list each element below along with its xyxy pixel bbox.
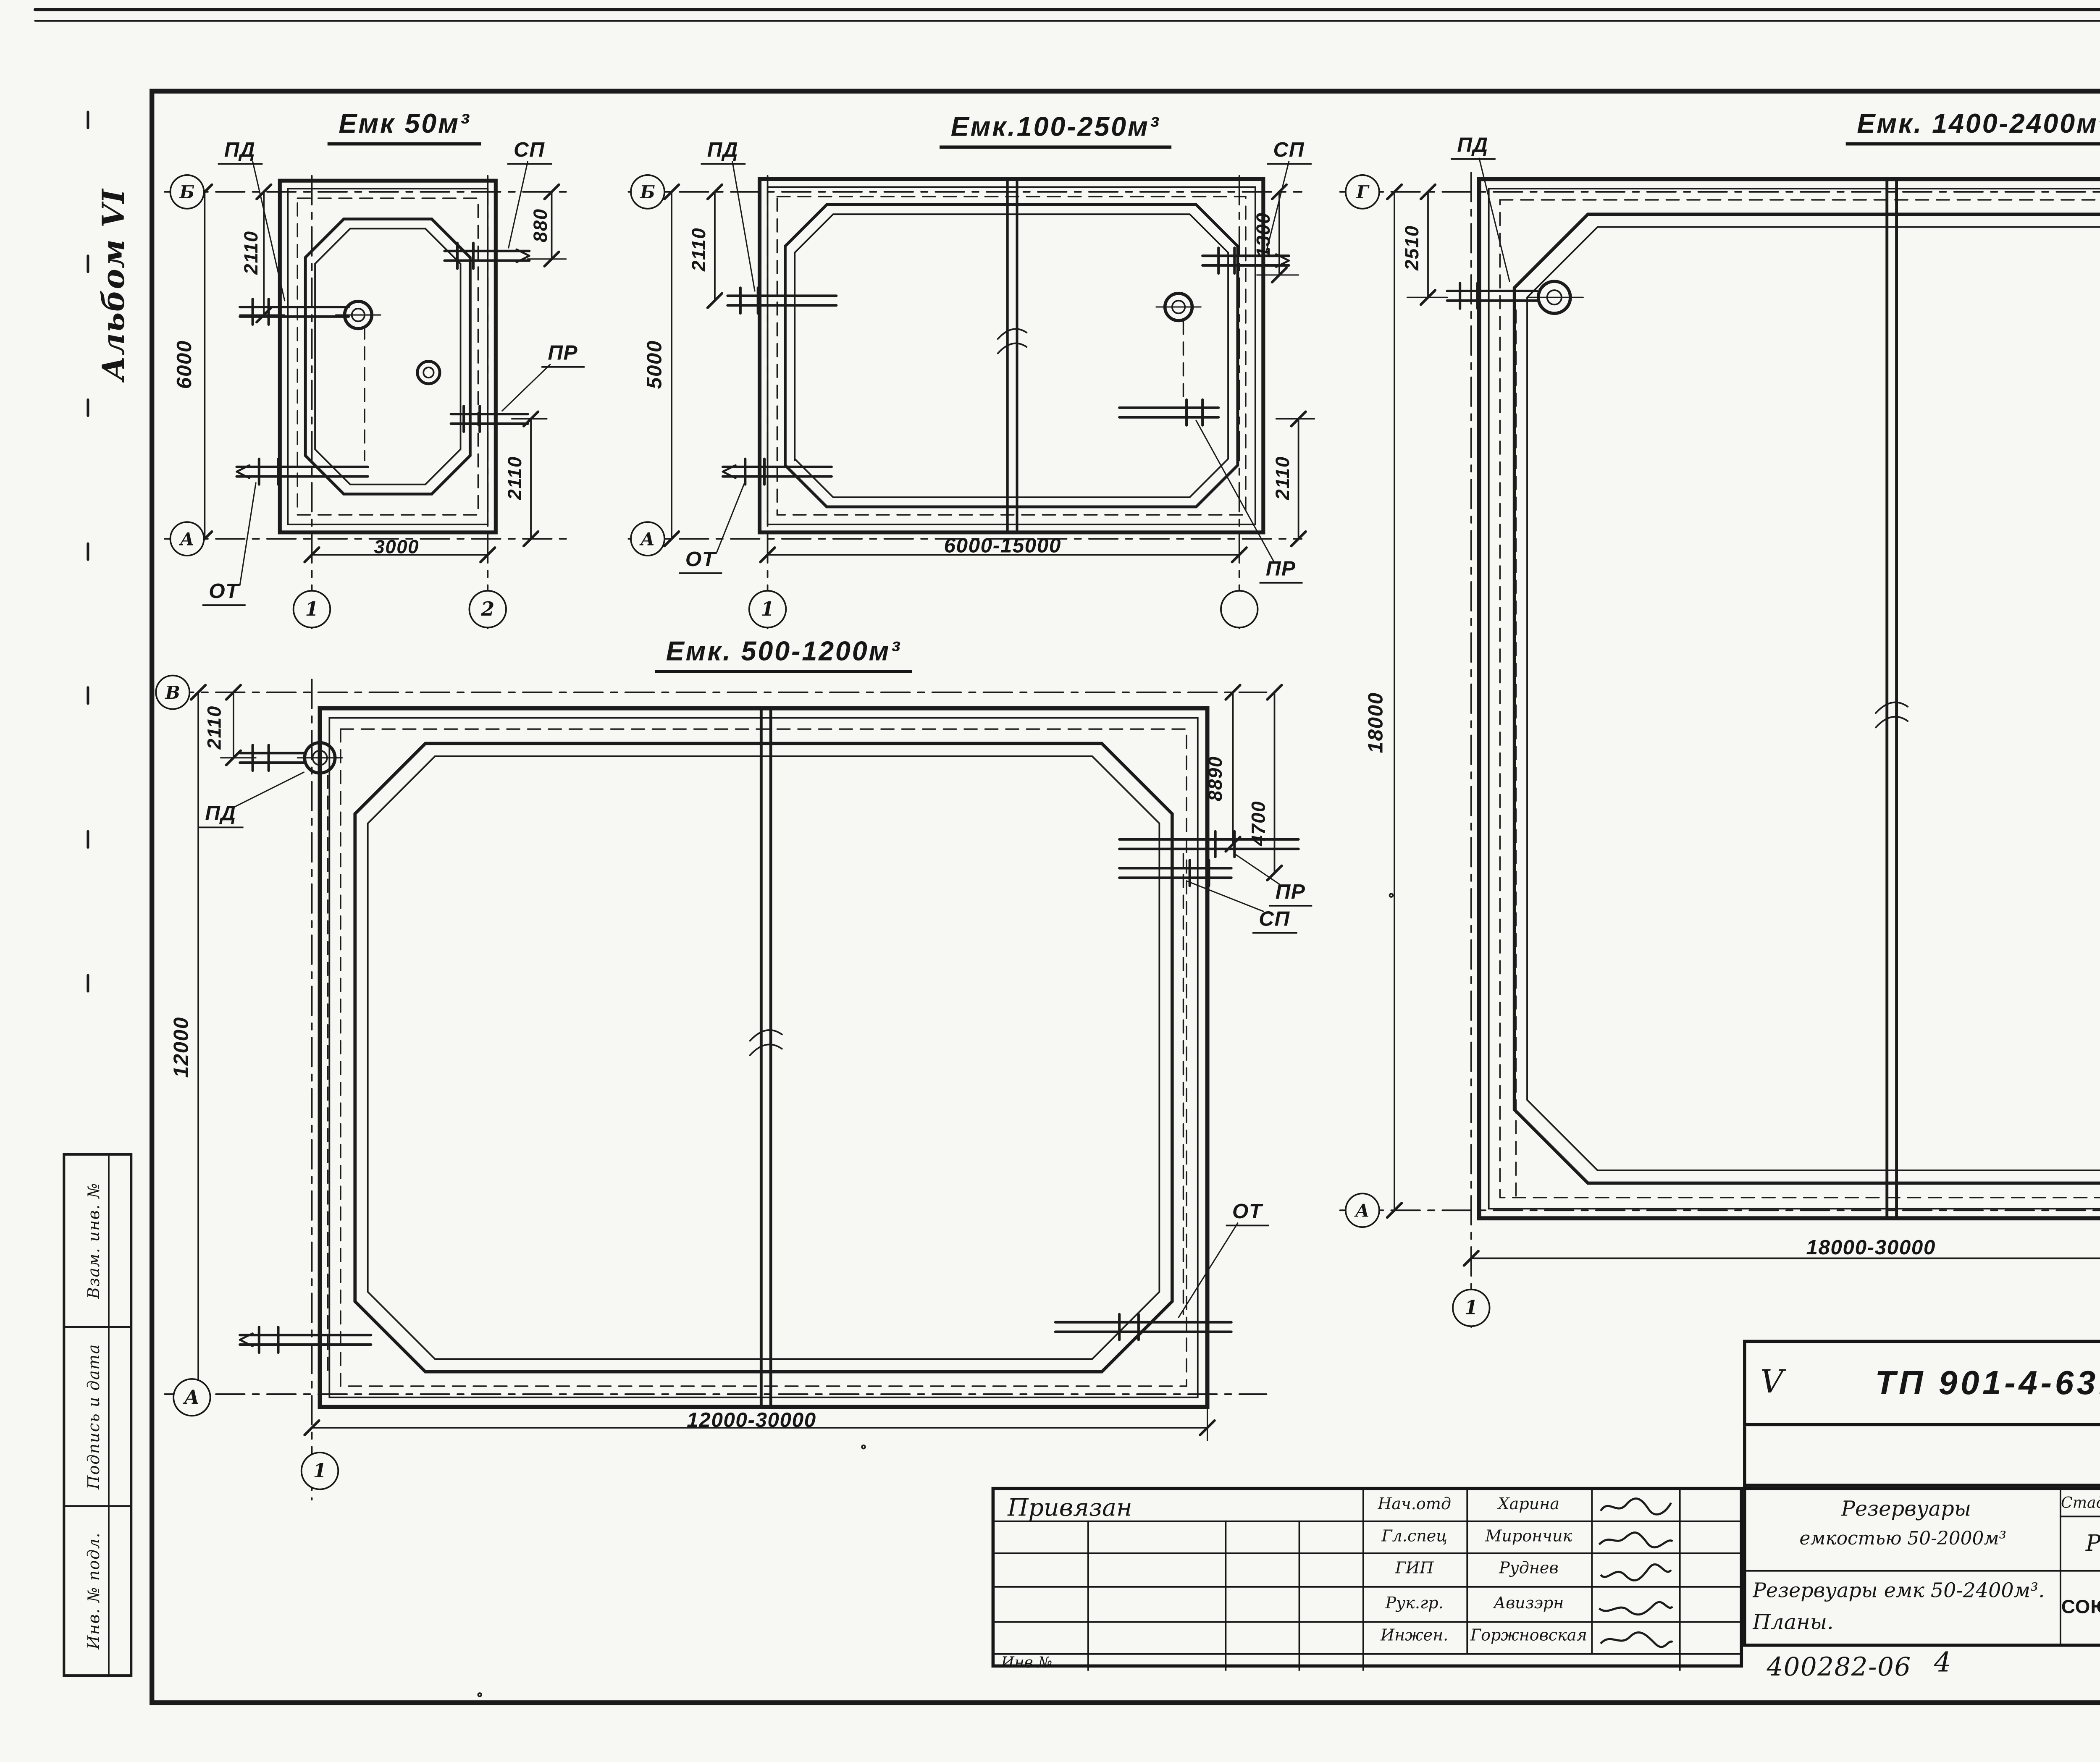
side-box-label-1: Подпись и дата <box>88 1344 104 1489</box>
d2-dim-2110-right: 2110 <box>1273 456 1292 500</box>
project-name-line1: Резервуары <box>1778 1498 2034 1522</box>
plan-500-1200m3 <box>165 679 1298 1500</box>
d3-title-emk-1400-2400: Емк. 1400-2400м³ <box>1846 110 2100 146</box>
d2-axis-marker-blank <box>1220 590 1258 628</box>
signature <box>1596 1596 1676 1620</box>
sheet-name-line1: Резервуары емк 50-2400м³. <box>1753 1578 2060 1602</box>
plan-100-250m3 <box>628 162 1314 630</box>
signature <box>1596 1628 1676 1652</box>
d4-dim-8890: 8890 <box>1206 756 1225 801</box>
sign-role: Нач.отд <box>1362 1497 1466 1514</box>
side-box-label-2: Инв. № подл. <box>88 1532 104 1649</box>
d1-pipe-label-pd: ПД <box>218 139 262 165</box>
d1-axis-marker-1: 1 <box>293 590 331 628</box>
d1-pipe-label-sp: СП <box>507 139 551 165</box>
stamp-check-mark: V <box>1756 1362 1788 1400</box>
d4-pipe-label-pr: ПР <box>1269 881 1312 907</box>
d3-dim-18000-30000: 18000-30000 <box>1806 1237 1936 1257</box>
d2-pipe-label-pr: ПР <box>1260 558 1302 584</box>
d4-dim-2110: 2110 <box>205 705 224 749</box>
d4-dim-12000-30000: 12000-30000 <box>687 1409 816 1430</box>
handwritten-doc-page: 4 <box>1934 1651 1952 1678</box>
d2-title-emk-100-250: Емк.100-250м³ <box>940 113 1171 149</box>
stamp-code: ТП 901-4-63.83-Т <box>1794 1366 2100 1404</box>
d1-dim-6000: 6000 <box>173 340 194 389</box>
sign-name: Мирончик <box>1466 1529 1591 1546</box>
d4-dim-12000: 12000 <box>170 1017 191 1078</box>
sign-name: Харина <box>1466 1497 1591 1514</box>
d4-pipe-label-ot: ОТ <box>1226 1201 1269 1226</box>
sheet-name-line2: Планы. <box>1753 1612 1913 1636</box>
d2-dim-6000-15000: 6000-15000 <box>944 535 1061 556</box>
signature <box>1596 1560 1676 1584</box>
d4-dim-4700: 4700 <box>1249 801 1268 846</box>
d1-dim-2110-right: 2110 <box>505 456 525 500</box>
d4-axis-marker-В: В <box>155 675 190 710</box>
inventory-label: Инв № <box>1001 1655 1097 1673</box>
title-block-left: Привязан Инв № Нач.отд Харина Гл.спец Ми… <box>992 1487 1743 1668</box>
signature <box>1596 1495 1676 1519</box>
d3-dim-2510: 2510 <box>1402 225 1422 270</box>
handwritten-doc-number: 400282-06 <box>1767 1655 1911 1681</box>
project-name-line2: емкостью 50-2000м³ <box>1746 1527 2060 1549</box>
d4-pipe-label-sp: СП <box>1252 908 1297 934</box>
d4-title-emk-500-1200: Емк. 500-1200м³ <box>655 638 912 673</box>
plan-50m3 <box>165 162 566 630</box>
stamp-gap-row <box>1743 1426 2100 1487</box>
sign-name: Авизэрн <box>1466 1596 1591 1613</box>
d4-pipe-label-pd: ПД <box>199 802 243 828</box>
album-label: Альбом VI <box>100 189 130 381</box>
organization-name: СОЮЗВОДОКАНАЛПРОЕКТ <box>2061 1596 2100 1618</box>
sign-name: Горжновская <box>1466 1628 1591 1645</box>
sign-role: Рук.гр. <box>1362 1596 1466 1613</box>
d1-axis-marker-Б: Б <box>170 174 205 210</box>
d1-axis-marker-А: А <box>170 521 205 556</box>
blueprint-sheet: 3 Альбом VI V ТП 901-4-63.83-Т Стадия Ли… <box>0 0 2100 1761</box>
d1-dim-880: 880 <box>531 208 550 242</box>
d1-dim-3000: 3000 <box>374 537 419 556</box>
d2-axis-marker-Б: Б <box>630 174 665 210</box>
stamp-row: V ТП 901-4-63.83-Т <box>1743 1340 2100 1426</box>
d2-dim-2110-left: 2110 <box>689 228 709 271</box>
d2-dim-1300: 1300 <box>1254 212 1273 258</box>
d3-dim-18000: 18000 <box>1365 692 1386 753</box>
sign-role: Инжен. <box>1362 1628 1466 1645</box>
d4-axis-marker-А: А <box>173 1378 211 1416</box>
d1-title-emk-50: Емк 50м³ <box>328 110 482 146</box>
attached-note: Привязан <box>1008 1493 1200 1522</box>
d1-pipe-label-ot: ОТ <box>202 580 245 606</box>
sign-role: Гл.спец <box>1362 1529 1466 1546</box>
d3-axis-marker-Г: Г <box>1345 174 1380 210</box>
sign-role: ГИП <box>1362 1560 1466 1578</box>
d3-pipe-label-pd: ПД <box>1451 134 1495 160</box>
sign-name: Руднев <box>1466 1560 1591 1578</box>
d2-dim-5000: 5000 <box>643 340 664 389</box>
d3-axis-marker-А: А <box>1345 1193 1380 1228</box>
d1-pipe-label-pr: ПР <box>541 342 584 368</box>
d1-dim-2110-left: 2110 <box>241 231 261 274</box>
signature <box>1596 1527 1676 1551</box>
d2-pipe-label-sp: СП <box>1267 139 1311 165</box>
stage-value: Р <box>2060 1531 2100 1557</box>
stage-header: Стадия <box>2060 1495 2100 1513</box>
side-box-label-0: Взам. инв. № <box>88 1183 104 1299</box>
d2-axis-marker-1: 1 <box>748 590 787 628</box>
plan-1400-2400m3 <box>1340 158 2100 1330</box>
title-block-right: Стадия Лист Листов Р 2 Резервуары емкост… <box>1743 1487 2100 1647</box>
d2-pipe-label-ot: ОТ <box>679 548 722 574</box>
d4-axis-marker-1: 1 <box>301 1452 339 1490</box>
d2-axis-marker-А: А <box>630 521 665 556</box>
d3-axis-marker-1: 1 <box>1452 1289 1490 1327</box>
d2-pipe-label-pd: ПД <box>701 139 745 165</box>
d1-axis-marker-2: 2 <box>469 590 507 628</box>
